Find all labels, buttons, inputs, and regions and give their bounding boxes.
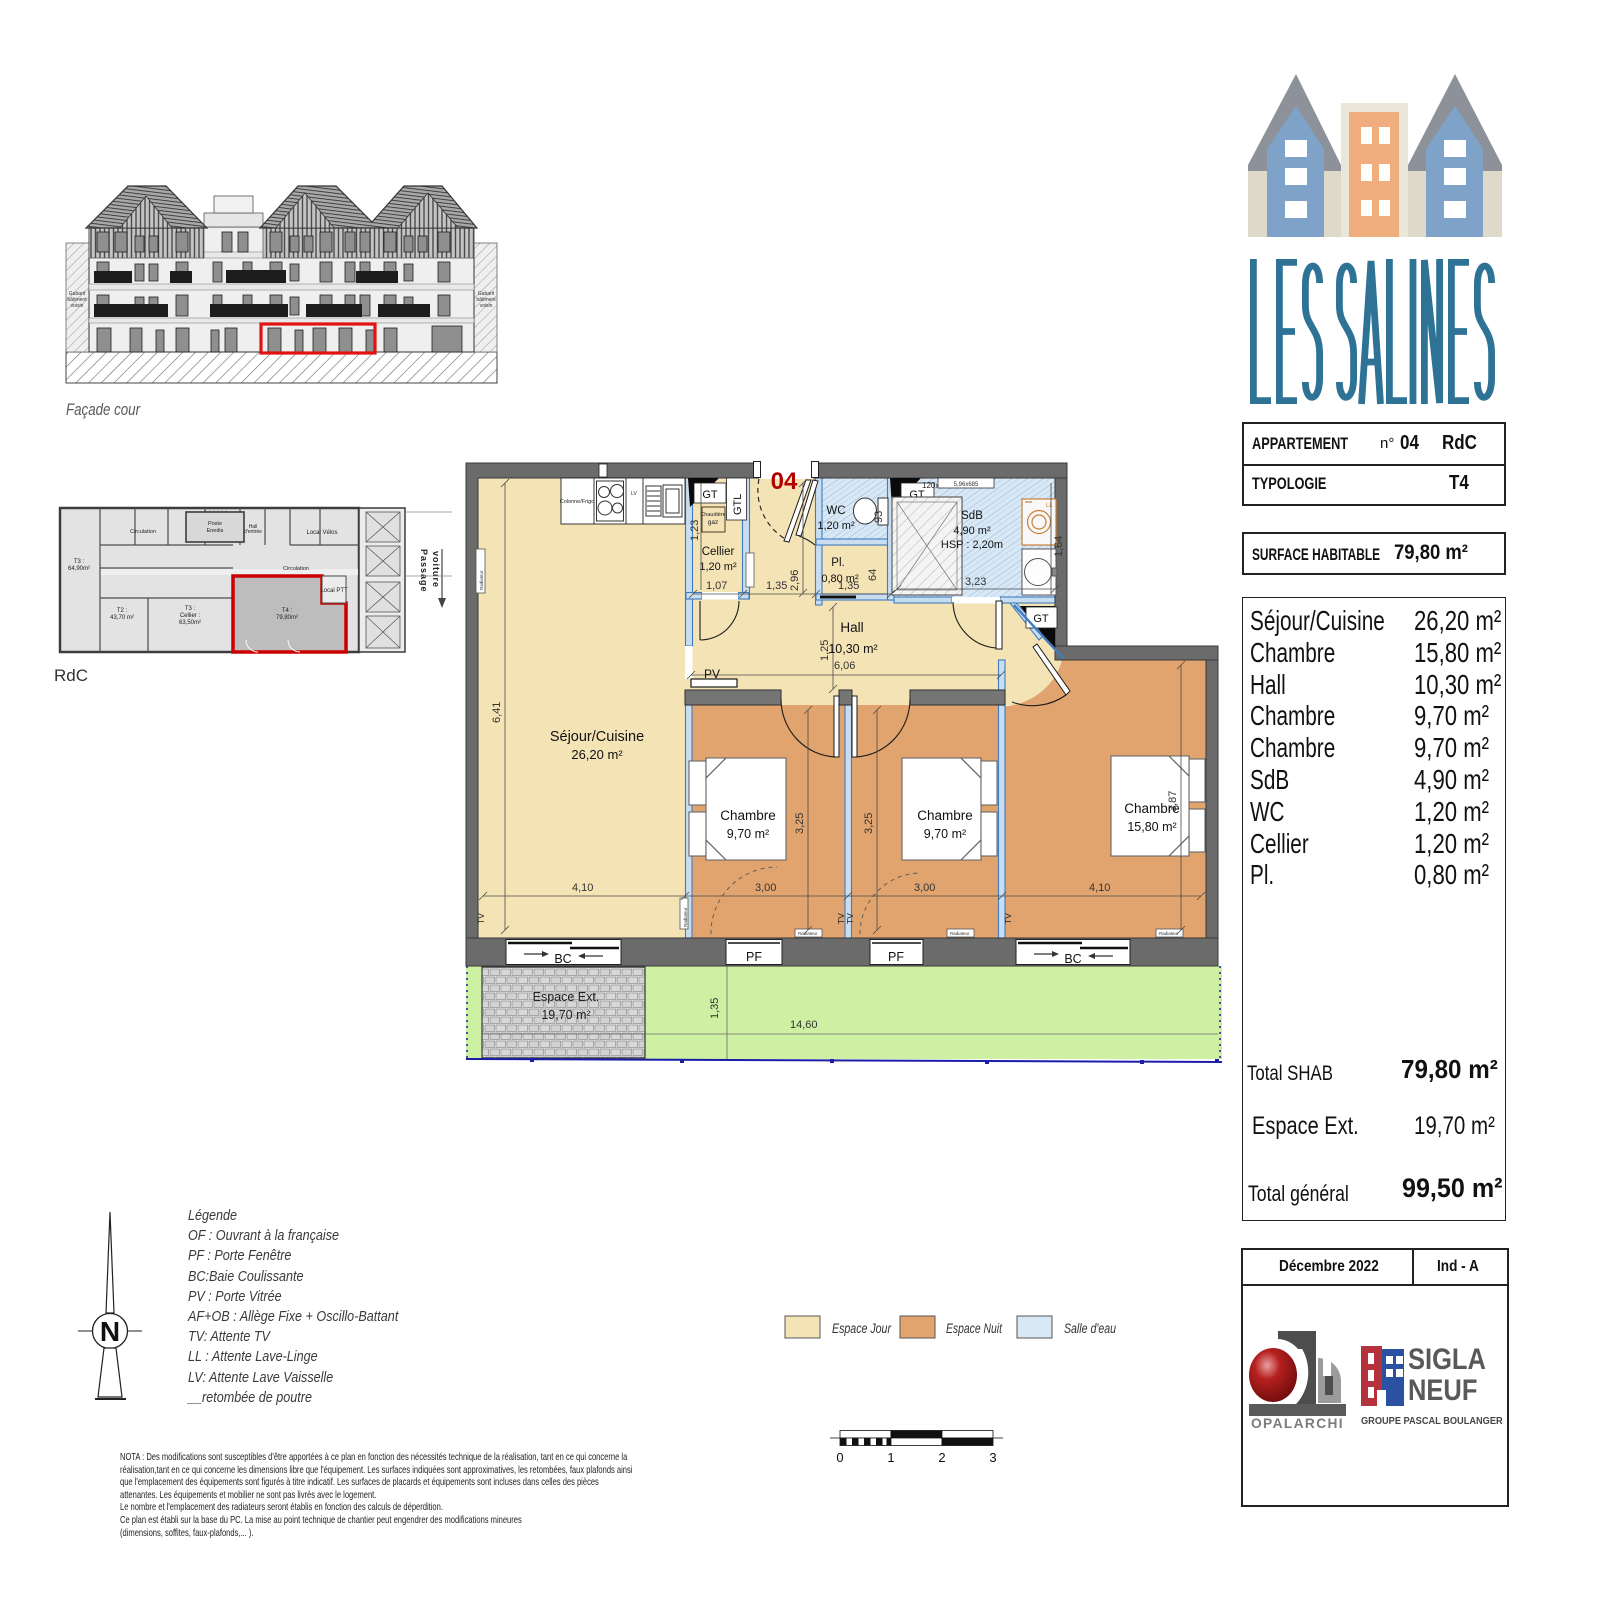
svg-text:1,35: 1,35 <box>709 998 721 1019</box>
svg-text:TV: TV <box>1003 913 1013 924</box>
svg-text:14,60: 14,60 <box>790 1019 818 1031</box>
svg-text:d'entrée: d'entrée <box>244 529 262 535</box>
svg-text:2: 2 <box>938 1450 945 1465</box>
svg-text:10,30 m²: 10,30 m² <box>828 642 877 656</box>
svg-text:gaz: gaz <box>708 519 718 526</box>
svg-text:1,35: 1,35 <box>766 580 787 592</box>
svg-text:5,96x685: 5,96x685 <box>954 482 979 488</box>
svg-text:TV: TV <box>845 913 855 924</box>
svg-text:2,96: 2,96 <box>789 570 801 591</box>
svg-text:N: N <box>100 1316 120 1347</box>
svg-text:T2 :: T2 : <box>117 608 128 614</box>
svg-text:64,90m²: 64,90m² <box>68 566 90 572</box>
svg-text:3: 3 <box>989 1450 996 1465</box>
svg-text:PF: PF <box>746 950 762 964</box>
svg-text:PF: PF <box>888 950 904 964</box>
svg-text:RdC: RdC <box>54 666 88 685</box>
svg-text:Salle d'eau: Salle d'eau <box>1064 1321 1116 1336</box>
svg-text:Passage: Passage <box>419 549 429 593</box>
svg-text:1,64: 1,64 <box>1053 536 1065 557</box>
svg-text:voisin: voisin <box>480 303 493 309</box>
svg-text:1,07: 1,07 <box>706 580 727 592</box>
svg-text:T3 :: T3 : <box>74 559 85 565</box>
svg-text:voisin: voisin <box>71 303 84 309</box>
svg-text:Circulation: Circulation <box>130 529 156 535</box>
svg-text:15,80 m²: 15,80 m² <box>1127 820 1176 834</box>
svg-text:Radiateur: Radiateur <box>950 931 970 936</box>
svg-text:Chambre: Chambre <box>1124 801 1180 816</box>
svg-text:0: 0 <box>836 1450 843 1465</box>
svg-text:Séjour/Cuisine: Séjour/Cuisine <box>550 729 644 745</box>
svg-text:TV: TV <box>476 913 486 924</box>
svg-text:3,23: 3,23 <box>965 576 986 588</box>
svg-text:HSP : 2,20m: HSP : 2,20m <box>941 539 1003 551</box>
svg-text:Chambre: Chambre <box>720 808 776 823</box>
svg-text:26,20 m²: 26,20 m² <box>571 747 623 762</box>
svg-text:Hall: Hall <box>840 620 863 635</box>
svg-text:GTL: GTL <box>732 494 744 515</box>
svg-text:Espace Nuit: Espace Nuit <box>946 1321 1003 1336</box>
svg-text:Poste: Poste <box>208 521 222 527</box>
svg-text:3,25: 3,25 <box>863 813 875 834</box>
svg-text:Radiateur: Radiateur <box>683 907 688 927</box>
svg-text:9,70 m²: 9,70 m² <box>924 827 966 841</box>
svg-text:1,20 m²: 1,20 m² <box>817 520 855 532</box>
svg-text:BC: BC <box>1064 952 1081 966</box>
svg-text:3,00: 3,00 <box>914 882 935 894</box>
svg-text:93: 93 <box>873 511 885 523</box>
svg-text:9,70 m²: 9,70 m² <box>727 827 769 841</box>
svg-text:Chambre: Chambre <box>917 808 973 823</box>
svg-text:LL: LL <box>1046 503 1053 509</box>
svg-text:Cellier: Cellier <box>702 546 735 558</box>
svg-text:SdB: SdB <box>961 510 983 522</box>
svg-text:1: 1 <box>887 1450 894 1465</box>
svg-text:6,06: 6,06 <box>834 660 855 672</box>
svg-text:4,10: 4,10 <box>572 882 593 894</box>
svg-text:4,90 m²: 4,90 m² <box>953 525 991 537</box>
svg-text:PV: PV <box>704 667 720 681</box>
svg-text:43,70 m²: 43,70 m² <box>110 615 134 621</box>
svg-text:Local PTT: Local PTT <box>320 588 348 594</box>
svg-text:T3 :: T3 : <box>185 606 196 612</box>
svg-text:Radiateur: Radiateur <box>479 570 484 590</box>
svg-text:Enedis: Enedis <box>207 528 224 534</box>
svg-text:3,25: 3,25 <box>794 813 806 834</box>
svg-text:19,70 m²: 19,70 m² <box>541 1008 590 1022</box>
svg-text:BC: BC <box>554 952 571 966</box>
svg-text:Cellier :: Cellier : <box>180 613 201 619</box>
svg-text:Colonne/Frigo: Colonne/Frigo <box>560 499 595 505</box>
svg-text:Radiateur: Radiateur <box>798 931 818 936</box>
svg-text:0,80 m²: 0,80 m² <box>821 573 859 585</box>
svg-text:Espace Jour: Espace Jour <box>832 1321 891 1336</box>
svg-text:64: 64 <box>867 569 879 581</box>
svg-text:Espace Ext.: Espace Ext. <box>533 990 600 1004</box>
svg-text:3,00: 3,00 <box>755 882 776 894</box>
svg-text:Chaudière: Chaudière <box>700 512 725 518</box>
svg-text:1,20 m²: 1,20 m² <box>699 561 737 573</box>
svg-text:voiture: voiture <box>431 551 441 588</box>
svg-text:63,50m²: 63,50m² <box>179 620 201 626</box>
svg-text:1,23: 1,23 <box>689 520 701 541</box>
svg-text:04: 04 <box>771 468 798 495</box>
svg-text:Radiateur: Radiateur <box>1159 931 1179 936</box>
svg-text:Façade cour: Façade cour <box>66 400 141 419</box>
svg-text:GT: GT <box>1033 613 1049 625</box>
svg-text:6,41: 6,41 <box>491 702 503 723</box>
svg-text:GT: GT <box>702 489 718 501</box>
svg-text:4,10: 4,10 <box>1089 882 1110 894</box>
svg-text:WC: WC <box>826 505 845 517</box>
svg-text:Pl.: Pl. <box>831 557 844 569</box>
svg-text:79,80m²: 79,80m² <box>276 615 298 621</box>
svg-text:Circulation: Circulation <box>283 566 309 572</box>
svg-text:T4 :: T4 : <box>282 608 293 614</box>
svg-text:LV: LV <box>631 491 637 497</box>
svg-text:Local Vélos: Local Vélos <box>306 530 337 536</box>
